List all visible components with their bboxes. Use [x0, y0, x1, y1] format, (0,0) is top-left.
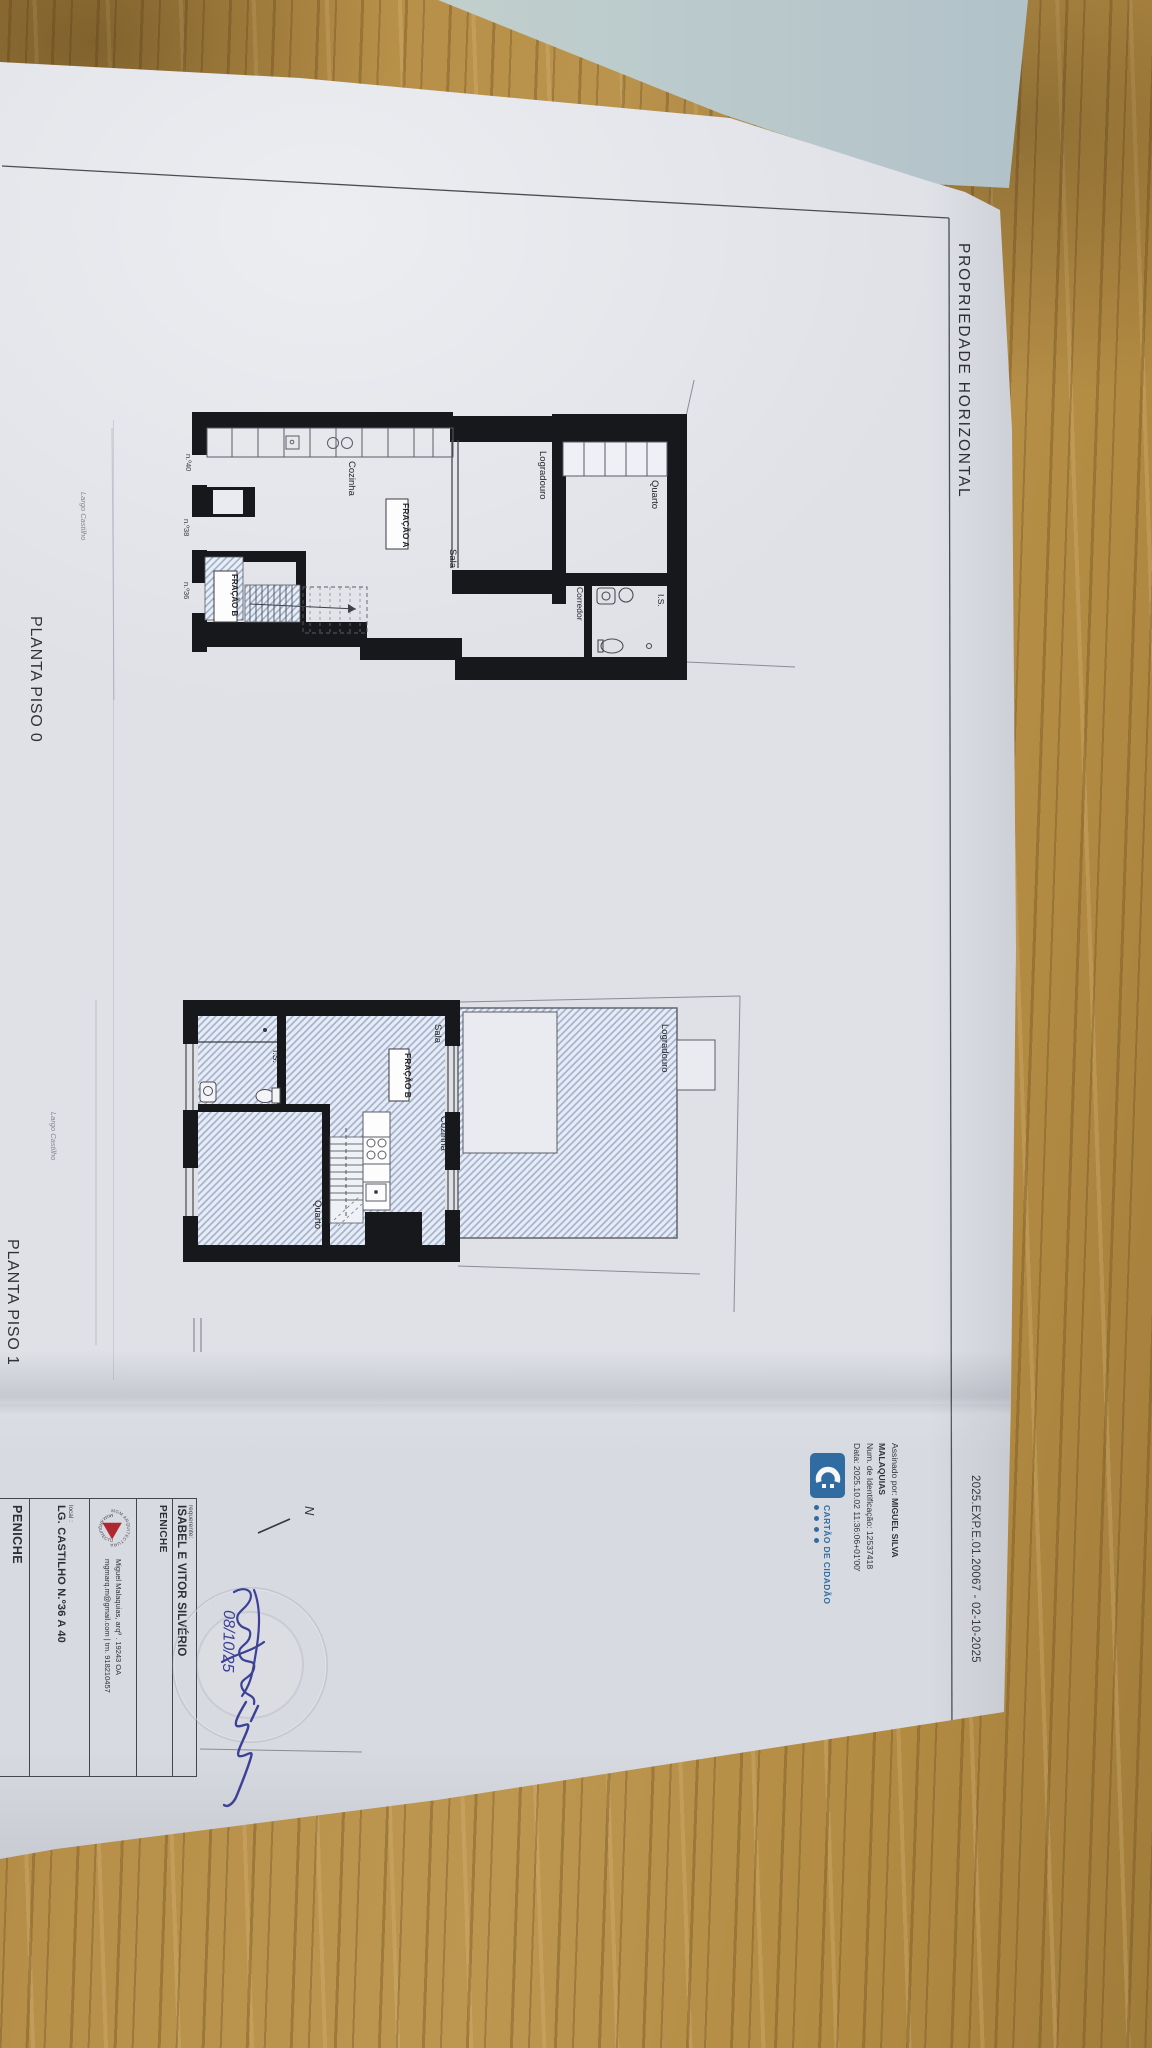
embossed-seal [173, 1588, 327, 1742]
north-arrow: N [258, 1506, 317, 1533]
photo-of-floor-plan-document: PROPRIEDADE HORIZONTAL 2025.EXP.E.01.200… [0, 0, 1152, 2048]
north-label: N [302, 1506, 317, 1516]
handwritten-date: 08/10/25 [219, 1610, 237, 1673]
